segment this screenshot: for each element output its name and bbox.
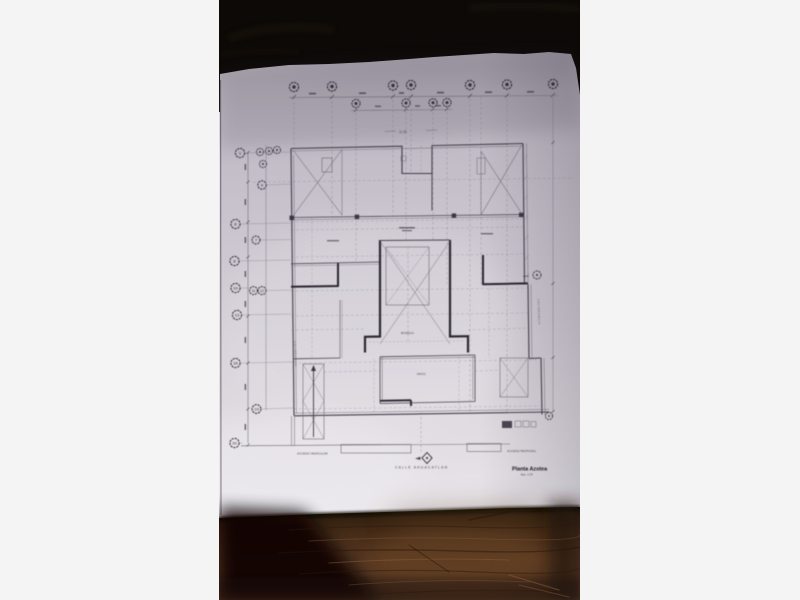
svg-text:Esc. 1:75: Esc. 1:75 <box>521 473 533 477</box>
svg-text:PATIO: PATIO <box>417 372 426 376</box>
svg-text:12: 12 <box>260 289 264 293</box>
svg-text:BODEGA: BODEGA <box>401 331 414 335</box>
svg-text:CALLE AHUACATLAN: CALLE AHUACATLAN <box>395 466 448 470</box>
svg-text:20: 20 <box>232 441 237 446</box>
svg-text:16: 16 <box>233 361 238 366</box>
svg-text:13: 13 <box>235 313 240 318</box>
svg-text:19: 19 <box>254 407 259 412</box>
svg-text:ACCESO VEHICULAR: ACCESO VEHICULAR <box>297 452 329 456</box>
svg-text:ACCESO PEATONAL: ACCESO PEATONAL <box>507 449 537 453</box>
svg-text:10: 10 <box>233 286 238 291</box>
svg-text:11: 11 <box>252 289 256 293</box>
svg-text:7: 7 <box>255 239 257 243</box>
